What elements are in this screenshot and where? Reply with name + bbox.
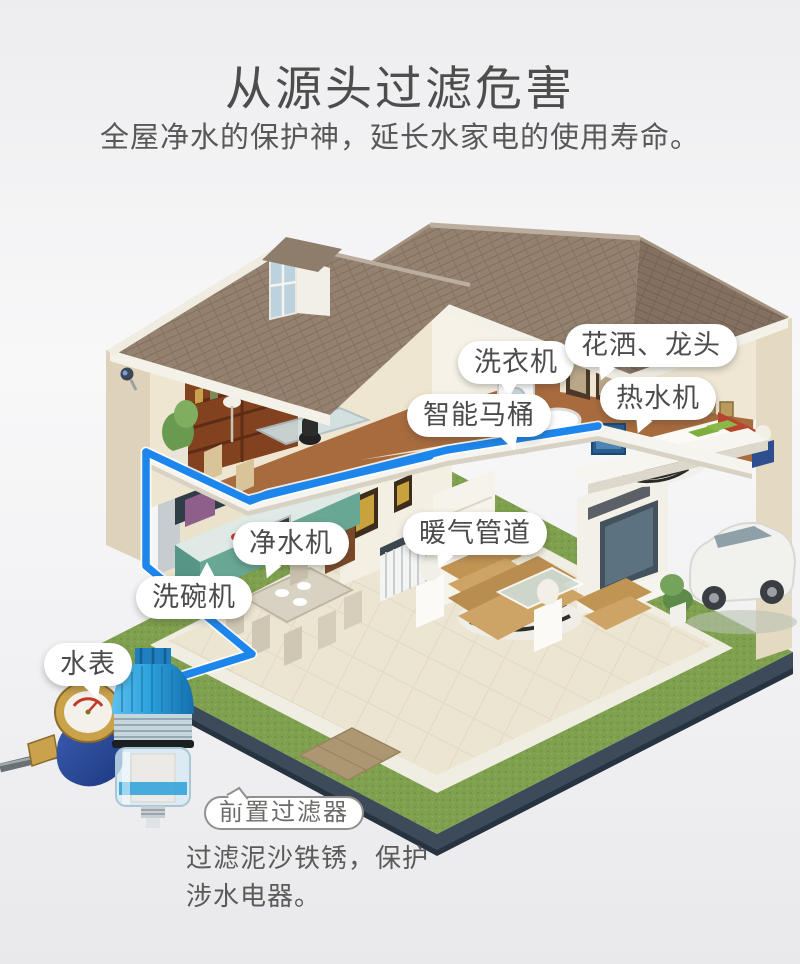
house-cutaway-illustration bbox=[0, 0, 800, 964]
callout-pre-filter: 前置过滤器 bbox=[204, 796, 364, 830]
callout-water-meter-label: 水表 bbox=[60, 649, 116, 679]
product-note: 过滤泥沙铁锈，保护 涉水电器。 bbox=[186, 839, 429, 915]
callout-water-meter: 水表 bbox=[44, 643, 132, 686]
callout-water-purifier-label: 净水机 bbox=[249, 528, 333, 558]
filter-bottom-tip bbox=[146, 818, 160, 828]
callout-dishwasher-label: 洗碗机 bbox=[152, 582, 236, 612]
callout-heating-pipes: 暖气管道 bbox=[403, 512, 547, 555]
callout-washing-machine-label: 洗衣机 bbox=[474, 347, 558, 377]
callout-shower-faucet: 花洒、龙头 bbox=[565, 324, 737, 367]
dish bbox=[293, 598, 307, 606]
filter-oring bbox=[112, 740, 194, 748]
security-camera-lens bbox=[123, 371, 128, 376]
study-plant bbox=[174, 400, 198, 428]
filter-bottom-fitting bbox=[141, 806, 165, 818]
callout-washing-machine: 洗衣机 bbox=[458, 341, 574, 384]
product-note-line1: 过滤泥沙铁锈，保护 bbox=[186, 839, 429, 877]
car-shadow bbox=[687, 610, 797, 634]
table-lamp bbox=[537, 579, 559, 605]
car bbox=[687, 523, 797, 634]
dish bbox=[275, 589, 289, 597]
dish bbox=[297, 582, 311, 590]
callout-dishwasher: 洗碗机 bbox=[136, 576, 252, 619]
filter-highlight bbox=[122, 752, 130, 804]
page: 从源头过滤危害 全屋净水的保护神，延长水家电的使用寿命。 bbox=[0, 0, 800, 964]
callout-smart-toilet: 智能马桶 bbox=[407, 394, 551, 437]
product-note-line2: 涉水电器。 bbox=[186, 877, 429, 915]
car-hub bbox=[709, 593, 719, 603]
callout-smart-toilet-label: 智能马桶 bbox=[423, 400, 535, 430]
callout-heating-pipes-label: 暖气管道 bbox=[419, 518, 531, 548]
callout-water-purifier: 净水机 bbox=[233, 522, 349, 565]
meter-nut bbox=[28, 735, 58, 766]
car-hub bbox=[767, 587, 777, 597]
right-exterior-wall bbox=[756, 318, 792, 660]
callout-water-heater-label: 热水机 bbox=[616, 383, 700, 413]
callout-water-heater: 热水机 bbox=[600, 377, 716, 420]
callout-tail bbox=[198, 562, 216, 579]
callout-shower-faucet-label: 花洒、龙头 bbox=[581, 330, 721, 360]
meter-pivot bbox=[86, 710, 91, 715]
plant bbox=[660, 574, 684, 596]
